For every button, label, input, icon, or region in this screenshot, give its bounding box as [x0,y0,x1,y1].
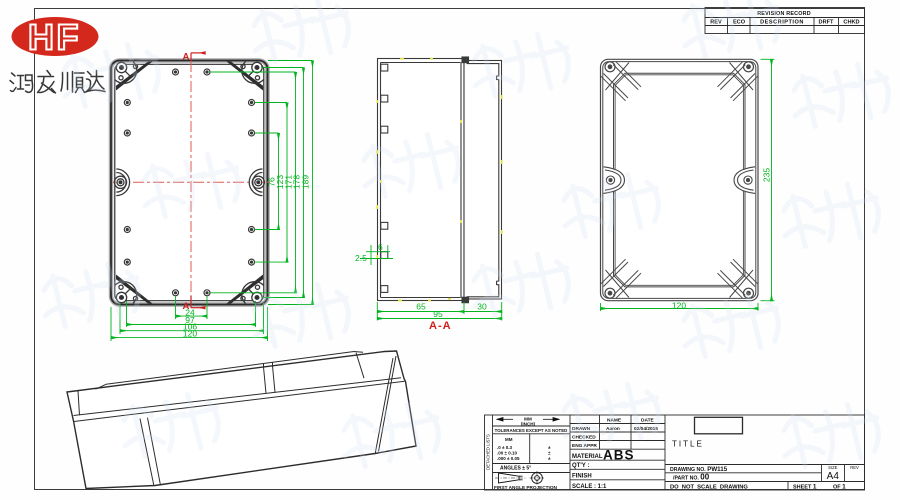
svg-text:.00 ± 0.10: .00 ± 0.10 [497,451,517,456]
svg-text:TITLE: TITLE [672,440,704,449]
svg-text:SIZE: SIZE [828,465,838,470]
svg-text:DATE: DATE [641,417,655,423]
svg-text:ABS: ABS [603,448,635,463]
svg-text:CHKD: CHKD [843,19,859,25]
svg-text:HF: HF [28,17,81,58]
svg-text:MATERIAL :: MATERIAL : [572,454,606,460]
svg-text:SCALE : 1:1: SCALE : 1:1 [572,484,607,490]
svg-text:DO NOT SCALE DRAWING: DO NOT SCALE DRAWING [670,484,748,490]
svg-text:95: 95 [433,309,443,319]
svg-text:TOLERANCES EXCEPT AS NOTED: TOLERANCES EXCEPT AS NOTED [495,428,568,433]
svg-text:120: 120 [183,329,197,339]
svg-text:65: 65 [416,302,426,312]
svg-text:DRAWING NO. PW115: DRAWING NO. PW115 [670,466,728,473]
svg-text:(INCH): (INCH) [521,422,536,427]
svg-text:QT'Y :: QT'Y : [572,463,589,469]
svg-text:2.5: 2.5 [355,253,367,263]
svg-text:A: A [183,51,190,62]
svg-text:235: 235 [762,168,772,182]
svg-text:ANGLES ± 5°: ANGLES ± 5° [500,466,531,472]
svg-text:A-A: A-A [429,320,452,332]
svg-text:120: 120 [672,300,686,310]
svg-text:DETACHED LISTS: DETACHED LISTS [486,434,491,470]
svg-text:FIRST ANGLE PROJECTION: FIRST ANGLE PROJECTION [494,485,557,490]
svg-text:DRFT: DRFT [819,19,834,25]
svg-text:™: ™ [87,17,93,24]
svg-text:.0 ± 0.3: .0 ± 0.3 [497,445,512,450]
svg-text:ECO: ECO [733,19,746,25]
svg-text:189: 189 [301,175,311,189]
svg-text:A4: A4 [827,471,840,482]
svg-text:MM: MM [505,437,513,442]
svg-text:.000 ± 0.05: .000 ± 0.05 [497,456,520,461]
svg-text:REV: REV [850,465,859,470]
svg-text:FINISH: FINISH [572,474,592,480]
svg-text:OF 1: OF 1 [833,483,846,490]
svg-text:6: 6 [378,242,383,252]
svg-text:SHEET 1: SHEET 1 [793,483,817,490]
svg-text:DESCRIPTION: DESCRIPTION [760,19,804,25]
